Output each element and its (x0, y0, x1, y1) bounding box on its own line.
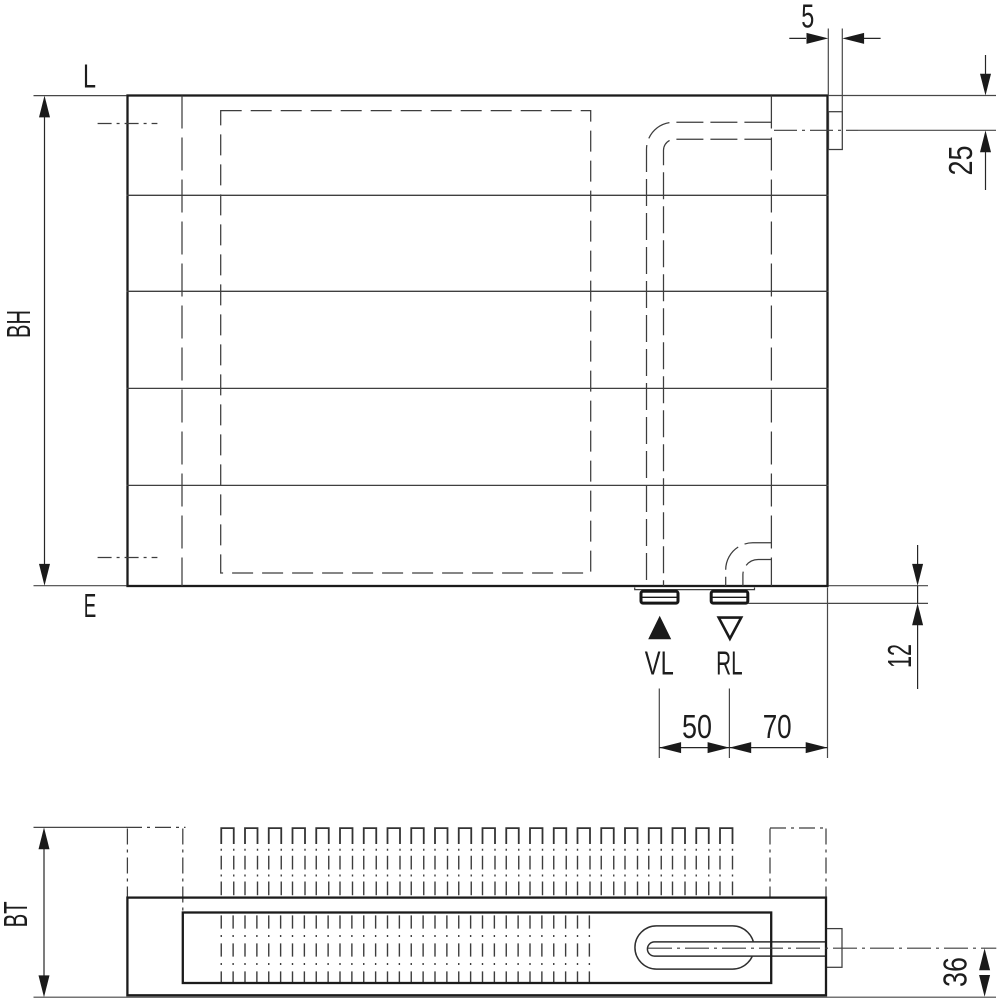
svg-text:E: E (84, 587, 97, 624)
svg-text:5: 5 (801, 0, 814, 34)
svg-text:BT: BT (0, 901, 34, 927)
svg-text:25: 25 (942, 146, 979, 176)
svg-text:BH: BH (0, 310, 37, 338)
svg-text:L: L (83, 58, 96, 95)
svg-text:50: 50 (682, 708, 712, 745)
svg-text:VL: VL (645, 644, 674, 681)
svg-text:36: 36 (937, 957, 974, 987)
svg-text:12: 12 (881, 644, 918, 668)
svg-text:RL: RL (716, 644, 743, 681)
svg-text:70: 70 (763, 708, 792, 745)
